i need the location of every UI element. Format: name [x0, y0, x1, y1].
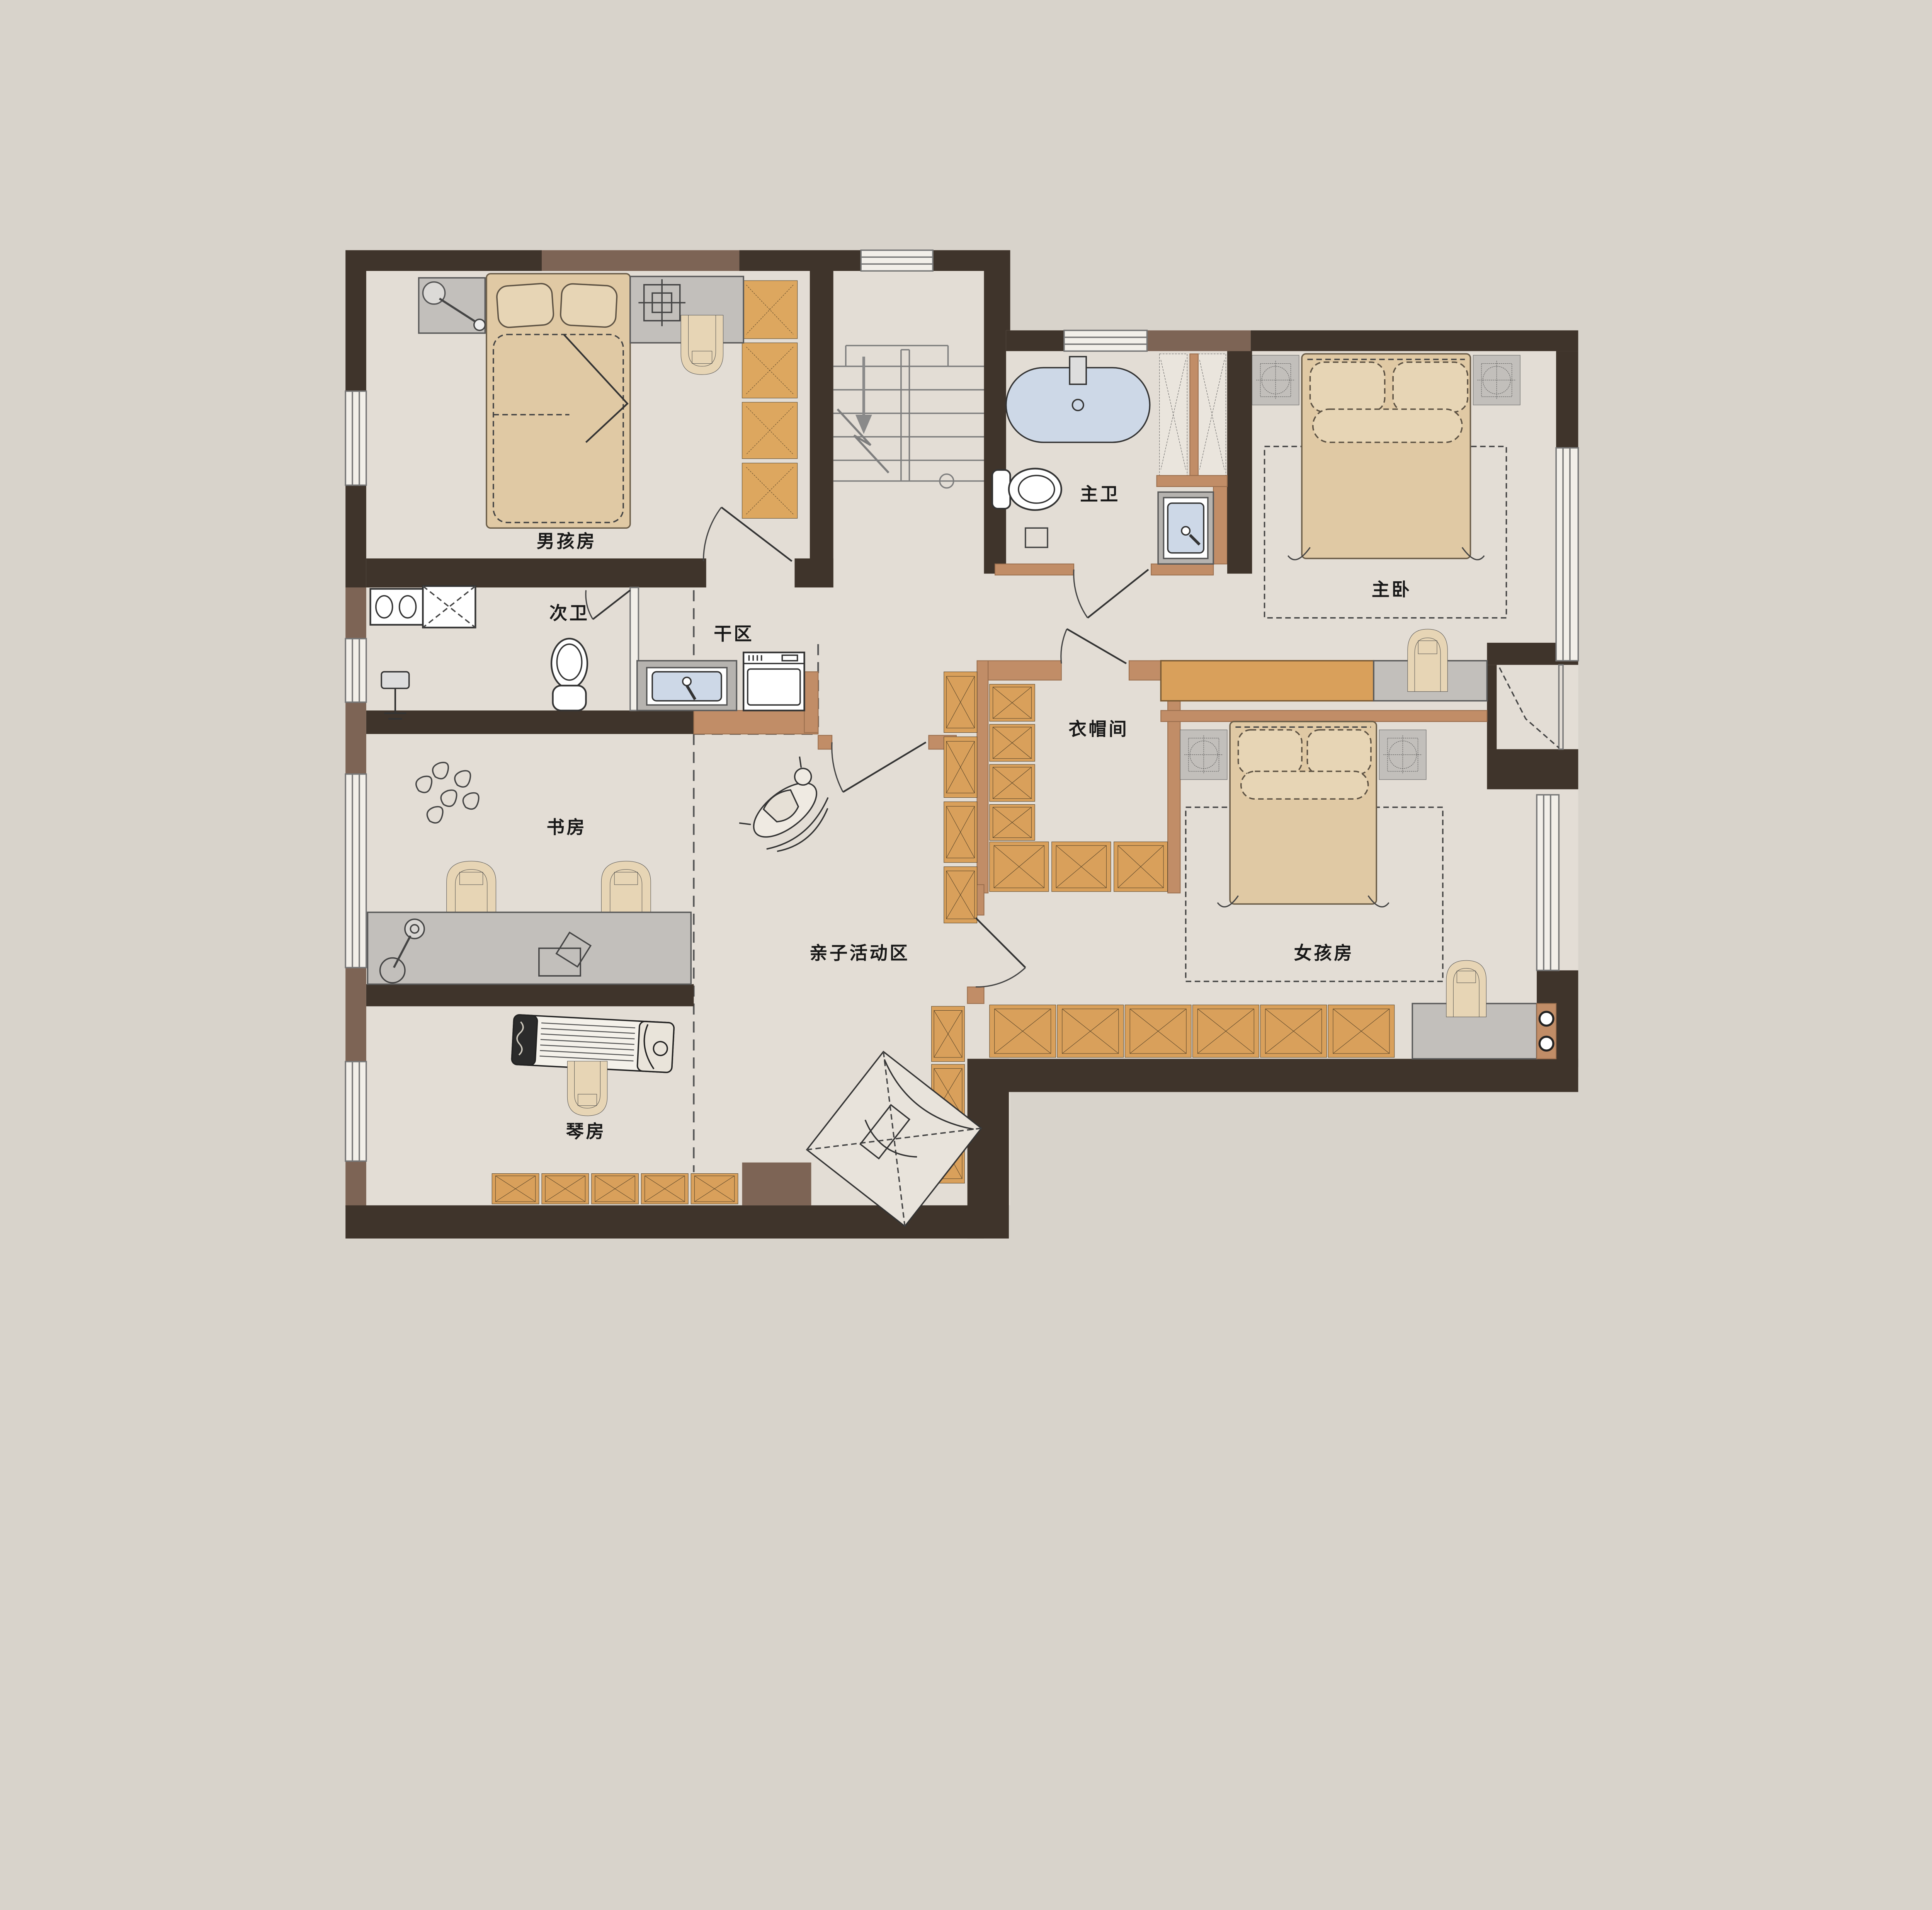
shower-glass-icon-part — [1160, 354, 1187, 476]
room-label-piano-room: 琴房 — [566, 1121, 606, 1141]
shower-glass-icon — [1157, 354, 1227, 487]
washer-pair-icon — [371, 589, 423, 625]
stool-icon — [567, 1061, 607, 1116]
shower-glass-icon-part — [1157, 475, 1227, 487]
wardrobe-icon-part — [1057, 1005, 1124, 1057]
room-label-master-bedroom: 主卧 — [1372, 579, 1412, 599]
wardrobe-icon-part — [944, 866, 977, 923]
chair-icon — [1408, 629, 1447, 691]
wardrobe-icon-part — [742, 343, 798, 398]
wall-part — [542, 250, 739, 271]
wall-part — [366, 710, 694, 734]
wall-part — [968, 1059, 1578, 1092]
bathtub-icon-part — [1070, 357, 1086, 385]
window-part — [1556, 448, 1578, 661]
window-part-part — [345, 1062, 366, 1161]
room-label-master-bath: 主卫 — [1080, 484, 1120, 504]
wall-part — [345, 702, 366, 774]
wall-part — [804, 672, 818, 732]
wall-part — [1227, 351, 1252, 574]
room-label-secondary-bath: 次卫 — [549, 603, 590, 623]
window-part-part — [1556, 448, 1578, 661]
desk-lamp-icon-part — [405, 919, 424, 938]
room-label-study: 书房 — [547, 817, 587, 838]
wall-part — [739, 250, 861, 271]
window-part — [345, 1062, 366, 1161]
wall-part — [345, 271, 366, 391]
nightstand-icon-part — [474, 319, 485, 330]
sink-vanity-icon — [637, 661, 737, 711]
wall-part — [742, 1163, 811, 1205]
wardrobe-icon-part — [542, 1173, 589, 1204]
wardrobe-icon-part — [1052, 842, 1111, 892]
wall-part — [1161, 710, 1487, 722]
wall-part — [1487, 665, 1497, 749]
wall-part — [366, 984, 694, 1006]
wall-part — [1129, 661, 1161, 680]
wall-part — [1213, 481, 1227, 564]
room-label-girl-room: 女孩房 — [1294, 943, 1354, 963]
wall-part — [1487, 749, 1578, 789]
window-part — [1064, 330, 1147, 351]
side-cabinet-icon-part — [1539, 1037, 1553, 1050]
nightstand-icon — [1473, 355, 1520, 405]
nightstand-icon — [1180, 730, 1227, 780]
wall-part — [1251, 330, 1578, 351]
window-part-part — [1064, 330, 1147, 351]
wall-part — [1151, 564, 1213, 575]
toilet-icon-part — [1009, 468, 1061, 510]
wall-part — [977, 661, 988, 893]
single-bed-icon — [486, 274, 630, 528]
wardrobe-icon-part — [742, 402, 798, 459]
wardrobe-icon-part — [944, 737, 977, 797]
double-bed-icon-part — [1313, 409, 1462, 443]
wall-part — [995, 564, 1074, 575]
double-bed-icon-part — [1241, 771, 1368, 799]
wall-part — [984, 271, 1006, 574]
sink-vanity-icon-part — [1182, 527, 1190, 535]
toilet-icon — [992, 468, 1061, 510]
wall-part — [345, 485, 366, 587]
window-part — [861, 250, 933, 271]
wardrobe-icon-part — [944, 672, 977, 732]
double-bed-icon-part — [1310, 362, 1385, 412]
wall-part — [366, 558, 706, 587]
nightstand-icon — [419, 278, 485, 333]
floorplan-canvas: 男孩房 次卫 干区 主卫 主卧 衣帽间 书房 亲子活动区 女孩房 琴房 — [0, 0, 1932, 1366]
wardrobe-icon-part — [990, 1005, 1056, 1057]
single-bed-icon-part — [560, 283, 617, 328]
window-part — [1537, 795, 1559, 970]
wall-part — [694, 710, 818, 734]
guzheng-icon-part — [637, 1021, 674, 1072]
room-label-activity-area: 亲子活动区 — [810, 943, 910, 963]
wall-part — [1147, 330, 1251, 351]
toilet-icon-part — [553, 686, 586, 710]
wall-part — [968, 987, 984, 1004]
wardrobe-icon-part — [592, 1173, 639, 1204]
window-part — [345, 638, 366, 702]
toilet-icon-part — [992, 470, 1010, 509]
window-part-part — [345, 638, 366, 702]
wall-part — [1556, 351, 1578, 448]
window-part-part — [1537, 795, 1559, 970]
nightstand-icon — [1252, 355, 1299, 405]
sink-vanity-icon-part — [683, 677, 691, 685]
wardrobe-icon-part — [944, 802, 977, 862]
wardrobe-icon-part — [742, 281, 798, 339]
wardrobe-icon-part — [1193, 1005, 1259, 1057]
side-cabinet-icon-part — [1539, 1012, 1553, 1026]
wardrobe-icon-part — [1125, 1005, 1191, 1057]
window-part — [345, 391, 366, 485]
wall-part — [988, 661, 1061, 680]
double-bed-icon-part — [1393, 362, 1468, 412]
double-bed-icon — [1288, 354, 1484, 560]
sink-vanity-icon — [1158, 492, 1213, 564]
wardrobe-icon-part — [742, 463, 798, 518]
wardrobe-icon-part — [691, 1173, 738, 1204]
wardrobe-icon-part — [1260, 1005, 1327, 1057]
double-bed-icon-part — [1307, 730, 1371, 774]
wardrobe-icon-part — [990, 724, 1035, 761]
room-label-boy-room: 男孩房 — [537, 531, 597, 551]
wardrobe-icon-part — [1114, 842, 1168, 892]
wardrobe-icon-part — [492, 1173, 539, 1204]
washing-machine-icon — [743, 652, 804, 710]
single-bed-icon-part — [496, 283, 554, 328]
wall-part — [1006, 330, 1064, 351]
chair-icon — [1446, 960, 1486, 1017]
shower-icon-part — [381, 672, 409, 688]
shower-glass-icon-part — [1198, 354, 1226, 476]
window-part-part — [861, 250, 933, 271]
wall-part — [345, 587, 366, 638]
window-part-part — [345, 774, 366, 968]
shower-glass-icon-part — [1190, 354, 1198, 476]
study-desk-icon — [367, 912, 691, 984]
wall-part — [345, 250, 542, 271]
dry-area-fixtures — [637, 652, 804, 710]
window-part-part — [345, 391, 366, 485]
makeup-counter-part — [1161, 661, 1374, 701]
wall-part — [345, 1161, 366, 1207]
guzheng-icon-part — [512, 1015, 537, 1066]
cabinet-icon — [423, 586, 475, 627]
wardrobe-icon-part — [990, 684, 1035, 721]
side-cabinet-icon — [1537, 1004, 1556, 1059]
toilet-icon — [551, 638, 587, 710]
window-part — [345, 774, 366, 968]
nightstand-icon — [1379, 730, 1426, 780]
washer-pair-icon-part — [371, 589, 423, 625]
wardrobe-icon-part — [990, 842, 1049, 892]
wardrobe-icon-part — [990, 805, 1035, 841]
wall-part — [818, 735, 832, 749]
wall-part — [810, 271, 833, 587]
wardrobe-icon-part — [990, 764, 1035, 802]
double-bed-icon — [1218, 722, 1389, 907]
room-label-dry-area: 干区 — [714, 624, 754, 644]
wardrobe-icon-part — [1328, 1005, 1395, 1057]
wardrobe-icon-part — [641, 1173, 689, 1204]
chair-icon — [681, 315, 723, 375]
double-bed-icon-part — [1238, 730, 1302, 774]
wall-part — [345, 968, 366, 1062]
room-label-walk-in-closet: 衣帽间 — [1069, 719, 1129, 739]
wardrobe-icon-part — [932, 1006, 965, 1062]
wall-part — [933, 250, 1010, 271]
